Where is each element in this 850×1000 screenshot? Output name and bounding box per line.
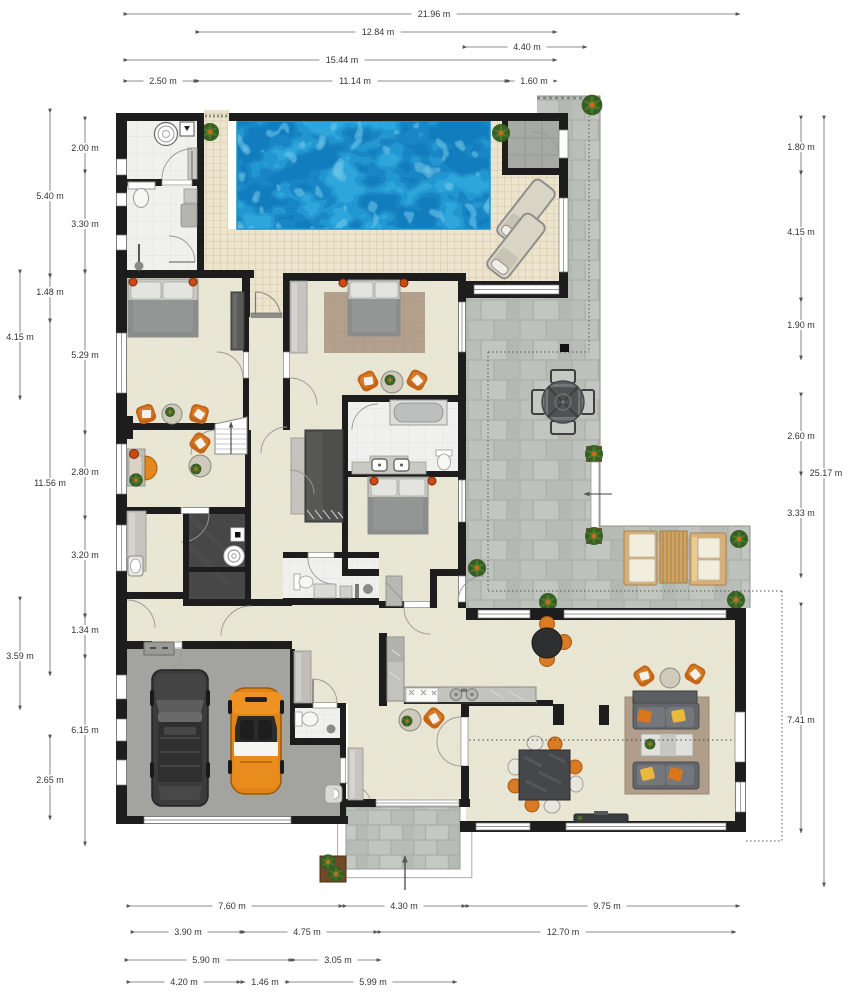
- svg-text:1.60 m: 1.60 m: [520, 76, 548, 86]
- svg-text:12.70 m: 12.70 m: [547, 927, 580, 937]
- svg-text:1.90 m: 1.90 m: [787, 320, 815, 330]
- svg-text:25.17 m: 25.17 m: [810, 468, 843, 478]
- svg-text:2.00 m: 2.00 m: [71, 143, 99, 153]
- svg-text:2.80 m: 2.80 m: [71, 467, 99, 477]
- svg-text:7.41 m: 7.41 m: [787, 715, 815, 725]
- svg-text:7.60 m: 7.60 m: [218, 901, 246, 911]
- svg-text:3.20 m: 3.20 m: [71, 550, 99, 560]
- svg-text:2.65 m: 2.65 m: [36, 775, 64, 785]
- svg-text:21.96 m: 21.96 m: [418, 9, 451, 19]
- svg-text:2.60 m: 2.60 m: [787, 431, 815, 441]
- svg-text:1.48 m: 1.48 m: [36, 287, 64, 297]
- svg-text:11.56 m: 11.56 m: [34, 478, 66, 488]
- svg-text:1.34 m: 1.34 m: [71, 625, 99, 635]
- svg-text:4.40 m: 4.40 m: [513, 42, 541, 52]
- svg-text:1.46 m: 1.46 m: [251, 977, 279, 987]
- svg-text:4.20 m: 4.20 m: [170, 977, 198, 987]
- svg-text:3.30 m: 3.30 m: [71, 219, 99, 229]
- svg-text:3.90 m: 3.90 m: [174, 927, 202, 937]
- svg-text:15.44 m: 15.44 m: [326, 55, 359, 65]
- svg-text:9.75 m: 9.75 m: [593, 901, 621, 911]
- svg-text:5.40 m: 5.40 m: [36, 191, 64, 201]
- svg-text:3.59 m: 3.59 m: [6, 651, 34, 661]
- svg-text:4.15 m: 4.15 m: [6, 332, 34, 342]
- svg-text:3.33 m: 3.33 m: [787, 508, 815, 518]
- svg-text:2.50 m: 2.50 m: [149, 76, 177, 86]
- svg-text:4.75 m: 4.75 m: [293, 927, 321, 937]
- svg-text:4.15 m: 4.15 m: [787, 227, 815, 237]
- svg-text:5.29 m: 5.29 m: [71, 350, 99, 360]
- svg-text:3.05 m: 3.05 m: [324, 955, 352, 965]
- svg-text:4.30 m: 4.30 m: [390, 901, 418, 911]
- svg-text:5.90 m: 5.90 m: [192, 955, 220, 965]
- svg-text:11.14 m: 11.14 m: [339, 76, 371, 86]
- svg-text:5.99 m: 5.99 m: [359, 977, 387, 987]
- svg-text:6.15 m: 6.15 m: [71, 725, 99, 735]
- svg-text:1.80 m: 1.80 m: [787, 142, 815, 152]
- svg-text:12.84 m: 12.84 m: [362, 27, 395, 37]
